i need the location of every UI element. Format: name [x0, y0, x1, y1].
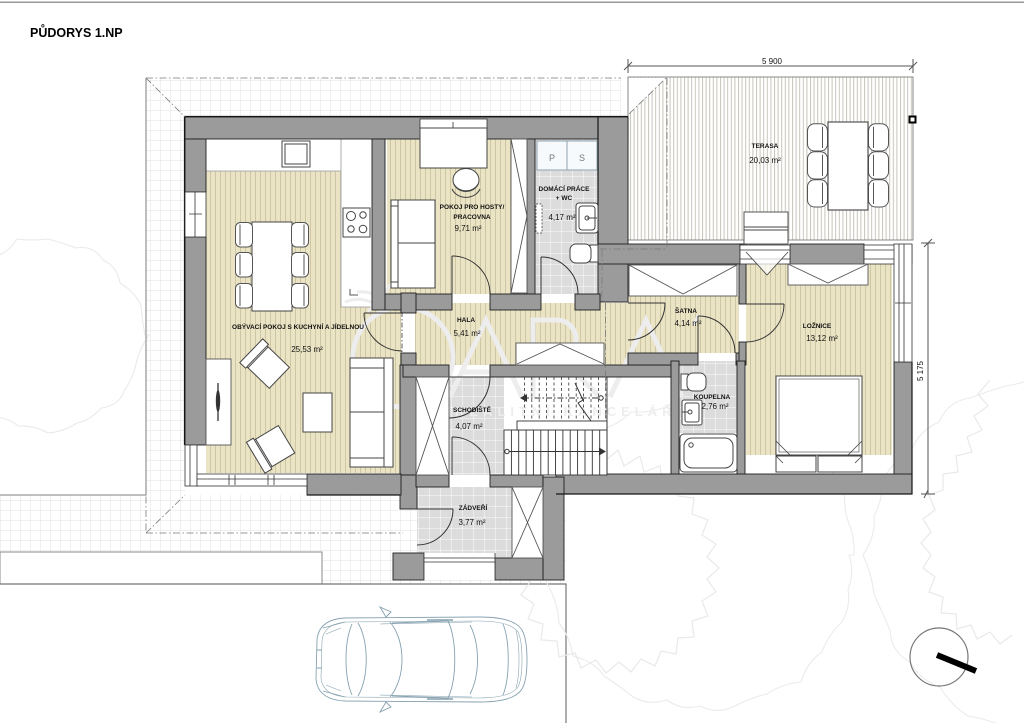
svg-text:HALA: HALA: [457, 317, 475, 324]
svg-text:2,76 m²: 2,76 m²: [701, 402, 728, 411]
svg-text:4,07 m²: 4,07 m²: [455, 422, 482, 431]
svg-text:5 900: 5 900: [762, 57, 783, 66]
svg-text:PŮDORYS 1.NP: PŮDORYS 1.NP: [30, 24, 123, 40]
svg-text:POKOJ PRO HOSTY/: POKOJ PRO HOSTY/: [440, 204, 505, 211]
svg-text:ŠATNA: ŠATNA: [675, 306, 697, 315]
svg-text:ZÁDVEŘÍ: ZÁDVEŘÍ: [459, 503, 488, 512]
svg-text:DOMÁCÍ PRÁCE: DOMÁCÍ PRÁCE: [539, 184, 591, 193]
svg-text:25,53 m²: 25,53 m²: [291, 345, 323, 354]
svg-text:13,12 m²: 13,12 m²: [806, 334, 838, 343]
svg-text:5 175: 5 175: [916, 360, 925, 381]
svg-text:SCHODIŠTĚ: SCHODIŠTĚ: [453, 405, 492, 414]
svg-text:4,17 m²: 4,17 m²: [548, 213, 575, 222]
svg-text:4,14 m²: 4,14 m²: [674, 319, 701, 328]
svg-text:TERASA: TERASA: [752, 143, 779, 150]
svg-text:3,77 m²: 3,77 m²: [458, 518, 485, 527]
svg-text:9,71 m²: 9,71 m²: [454, 224, 481, 233]
svg-text:PRACOVNA: PRACOVNA: [453, 214, 491, 221]
svg-text:S: S: [579, 153, 585, 163]
svg-text:P: P: [549, 153, 555, 163]
svg-text:LOŽNICE: LOŽNICE: [803, 321, 832, 330]
svg-text:OBÝVACÍ POKOJ S KUCHYNÍ A JÍDE: OBÝVACÍ POKOJ S KUCHYNÍ A JÍDELNOU: [232, 322, 364, 331]
svg-text:5,41 m²: 5,41 m²: [453, 329, 480, 338]
svg-text:KOUPELNA: KOUPELNA: [694, 394, 731, 401]
svg-text:+ WC: + WC: [556, 195, 573, 202]
svg-text:20,03 m²: 20,03 m²: [749, 156, 781, 165]
